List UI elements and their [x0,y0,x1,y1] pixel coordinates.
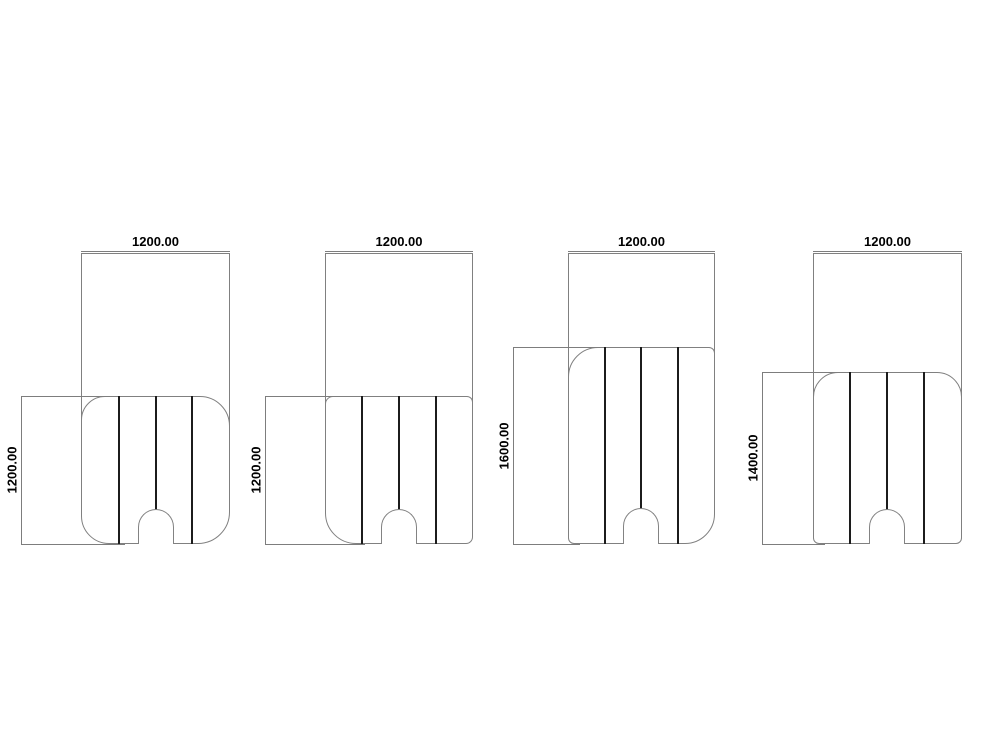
panel-seam-line [677,347,679,544]
width-dimension-label: 1200.00 [81,234,230,249]
panel-seam-line-middle [398,396,400,510]
panel-seam-line [849,372,851,544]
width-dimension-line [325,251,473,252]
panel-seam-line [118,396,120,544]
panel-seam-line-middle [640,347,642,509]
cutout-arch-outline [623,508,659,544]
cutout-arch-outline [138,509,174,544]
panel-seam-line [361,396,363,544]
height-dimension-label: 1200.00 [249,447,264,494]
height-dimension-extension-bottom [762,544,825,545]
width-dimension-label: 1200.00 [325,234,473,249]
panel-seam-line-middle [155,396,157,510]
width-dimension-label: 1200.00 [568,234,715,249]
width-dimension-label: 1200.00 [813,234,962,249]
height-dimension-line [762,372,763,544]
width-dimension-line [81,251,230,252]
height-dimension-line [21,396,22,544]
height-dimension-label: 1200.00 [5,447,20,494]
height-dimension-extension-top [513,347,600,348]
height-dimension-label: 1600.00 [497,422,512,469]
width-dimension-line [813,251,962,252]
height-dimension-extension-bottom [513,544,580,545]
height-dimension-line [513,347,514,544]
height-dimension-extension-top [762,372,840,373]
width-dimension-line [568,251,715,252]
height-dimension-label: 1400.00 [746,435,761,482]
drawing-canvas: 1200.001200.001200.001200.001200.001600.… [0,0,1000,755]
panel-seam-line [604,347,606,544]
cutout-arch-outline [869,509,905,544]
height-dimension-extension-bottom [265,544,365,545]
panel-seam-line [191,396,193,544]
cutout-arch-outline [381,509,417,544]
panel-seam-line-middle [886,372,888,510]
panel-seam-line [435,396,437,544]
height-dimension-line [265,396,266,544]
height-dimension-extension-top [265,396,340,397]
panel-seam-line [923,372,925,544]
height-dimension-extension-bottom [21,544,125,545]
height-dimension-extension-top [21,396,110,397]
